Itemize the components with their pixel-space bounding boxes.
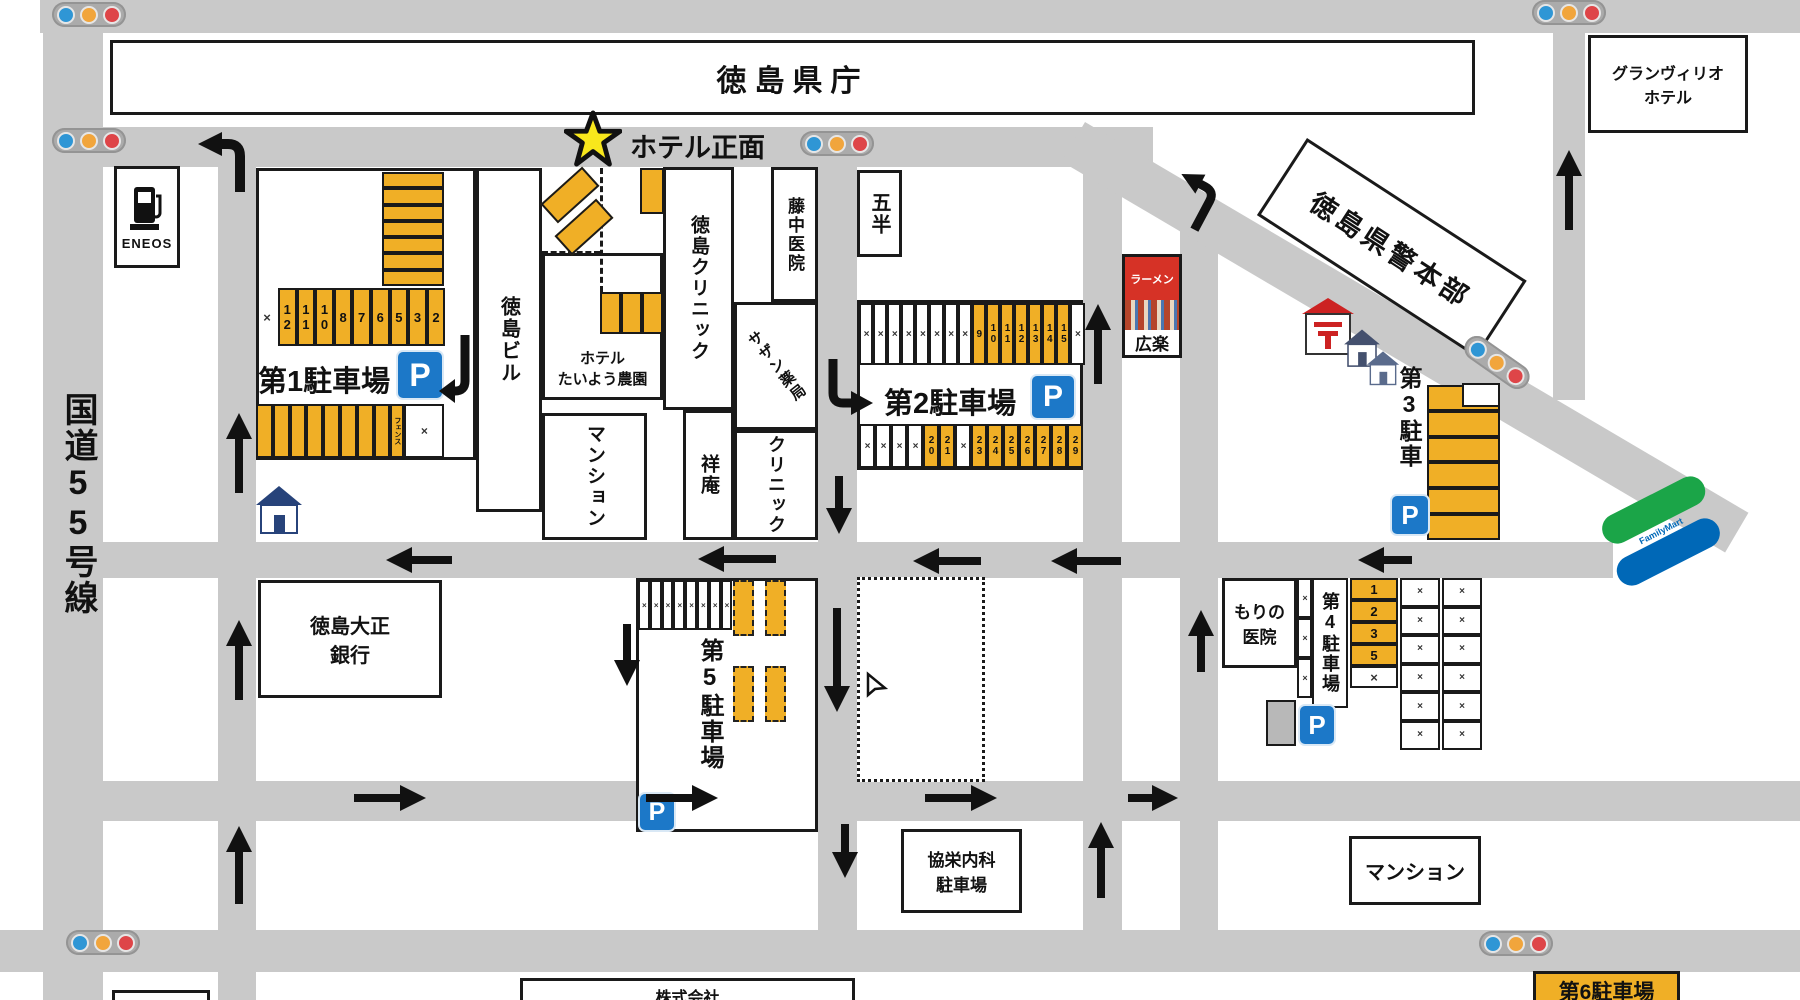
kyoei-label-line1: 協栄内科 xyxy=(928,846,996,871)
tokushima-clinic-label: 徳島クリニック xyxy=(685,215,712,362)
parking-spot: 10 xyxy=(986,303,1000,365)
parking-spot: 3 xyxy=(408,288,427,346)
parking-icon: P xyxy=(396,350,444,400)
parking-spot: 3 xyxy=(1350,622,1398,644)
southern-pharmacy-label: サザン薬局 xyxy=(742,326,811,406)
cursor-icon xyxy=(862,668,890,698)
parking-icon: P xyxy=(1030,374,1076,420)
bank-label-line1: 徳島大正 xyxy=(310,610,390,639)
building-kyoei-parking: 協栄内科 駐車場 xyxy=(901,829,1022,913)
parking-spot: 24 xyxy=(987,424,1003,468)
parking-spot xyxy=(621,292,642,334)
building-gohan: 五半 xyxy=(857,170,902,257)
traffic-light-icon xyxy=(800,131,874,156)
parking-spot xyxy=(1427,488,1500,514)
traffic-light-icon xyxy=(52,2,126,27)
parking-spot: × xyxy=(1442,721,1482,750)
building-mansion-center: マンション xyxy=(542,413,647,540)
signal-red-icon xyxy=(103,6,121,24)
left-arrow-icon xyxy=(913,546,981,576)
parking-spot xyxy=(1427,462,1500,488)
morino-label-line1: もりの xyxy=(1234,598,1285,623)
parking-spot xyxy=(1427,437,1500,463)
building-shoan: 祥庵 xyxy=(683,410,734,540)
parking-lot4-label-box: 第4駐車場 xyxy=(1312,578,1348,708)
parking-spot: 29 xyxy=(1067,424,1083,468)
parking-spot: × xyxy=(891,424,907,468)
parking-spot xyxy=(323,404,340,458)
parking-lot2-bottom-row: ××××2021×23242526272829 xyxy=(859,424,1083,468)
building-granvrio-hotel: グランヴィリオ ホテル xyxy=(1588,35,1748,133)
signal-blue-icon xyxy=(805,135,823,153)
hotel-taiyo-label-line1: ホテル xyxy=(580,347,625,368)
parking-spot: × xyxy=(1297,618,1312,658)
building-southern-pharmacy: サザン薬局 xyxy=(734,302,818,430)
signal-blue-icon xyxy=(57,6,75,24)
parking-lot5-label: 第5駐車場 xyxy=(692,638,727,771)
parking-spot: 2 xyxy=(1350,600,1398,622)
parking-spot: × xyxy=(1297,658,1312,698)
parking-spot: 26 xyxy=(1019,424,1035,468)
signal-blue-icon xyxy=(57,132,75,150)
parking-spot: 11 xyxy=(297,288,316,346)
parking-spot: × xyxy=(907,424,923,468)
fujinaka-clinic-label: 藤中医院 xyxy=(782,197,807,273)
parking-spot xyxy=(382,205,444,221)
parking-spot: × xyxy=(1400,635,1440,664)
parking-spot: × xyxy=(638,580,650,630)
parking-spot: フェンス xyxy=(390,404,404,458)
building-tokushima-clinic: 徳島クリニック xyxy=(663,167,734,410)
parking-map: 徳島県庁 グランヴィリオ ホテル 徳島県警本部 国道55号線 ENEOS ×12… xyxy=(0,0,1800,1000)
parking-spot: × xyxy=(1400,692,1440,721)
parking-spot: 14 xyxy=(1042,303,1056,365)
signal-yellow-icon xyxy=(80,6,98,24)
traffic-light-icon xyxy=(1532,0,1606,25)
granvrio-label-line2: ホテル xyxy=(1644,84,1692,108)
house-icon xyxy=(1362,350,1404,388)
right-arrow-icon xyxy=(1128,783,1178,813)
building-tokushima-bldg: 徳島ビル xyxy=(476,168,542,512)
parking-spot: × xyxy=(901,303,915,365)
parking-spot xyxy=(733,580,754,636)
parking-spot: × xyxy=(404,404,444,458)
traffic-light-icon xyxy=(1479,931,1553,956)
turn-arrow-icon xyxy=(823,355,879,415)
granvrio-label-line1: グランヴィリオ xyxy=(1612,60,1724,84)
parking-spot: × xyxy=(1442,607,1482,636)
parking-spot xyxy=(290,404,307,458)
house-icon xyxy=(254,484,304,538)
parking-spot: 8 xyxy=(334,288,353,346)
parking-spot: × xyxy=(1297,578,1312,618)
building-fujinaka-clinic: 藤中医院 xyxy=(771,167,818,302)
parking-spot: × xyxy=(1400,607,1440,636)
ramen-sign-label: ラーメン xyxy=(1125,257,1179,300)
parking-lot4-closed-column: ×××××× xyxy=(1400,578,1440,750)
building-eneos: ENEOS xyxy=(114,166,180,268)
right-arrow-icon xyxy=(646,783,718,813)
parking-spot: 12 xyxy=(278,288,297,346)
building-mansion-bottom: マンション xyxy=(1349,836,1481,905)
parking-lot4-thin-column: ××× xyxy=(1297,578,1312,698)
left-arrow-icon xyxy=(386,545,452,575)
parking-spot: × xyxy=(1350,666,1398,688)
parking-spot: 11 xyxy=(1000,303,1014,365)
parking-spot: × xyxy=(709,580,721,630)
parking-spot: 15 xyxy=(1056,303,1070,365)
parking-spot: 12 xyxy=(1014,303,1028,365)
parking-spot: × xyxy=(1442,578,1482,607)
signal-red-icon xyxy=(1530,935,1548,953)
up-arrow-icon xyxy=(1186,610,1216,672)
parking-spot: × xyxy=(958,303,972,365)
parking-spot: × xyxy=(650,580,662,630)
morino-label-line2: 医院 xyxy=(1243,623,1277,648)
building-bottom-left xyxy=(112,990,210,1000)
parking-spot xyxy=(1427,411,1500,437)
parking-boundary-dash xyxy=(600,168,603,292)
parking-spot: × xyxy=(875,424,891,468)
parking-spot: × xyxy=(685,580,697,630)
ramen-bowls-icon xyxy=(1125,300,1179,329)
signal-yellow-icon xyxy=(1484,350,1509,375)
signal-blue-icon xyxy=(1466,337,1491,362)
up-arrow-icon xyxy=(1086,822,1116,898)
down-arrow-icon xyxy=(612,624,642,686)
building-kabushiki: 株式会社 xyxy=(520,978,855,1000)
parking-spot: 5 xyxy=(1350,644,1398,666)
parking-lot3-cells xyxy=(1427,385,1500,540)
hotel-parking-cells xyxy=(600,292,663,334)
hotel-front-label: ホテル正面 xyxy=(630,126,765,165)
parking-spot xyxy=(640,168,664,214)
parking-spot: 20 xyxy=(923,424,939,468)
parking-spot xyxy=(273,404,290,458)
turn-arrow-icon xyxy=(194,128,252,194)
traffic-light-icon xyxy=(52,128,126,153)
signal-red-icon xyxy=(1583,4,1601,22)
turn-arrow-icon xyxy=(439,331,473,405)
road-fourth xyxy=(43,781,1800,821)
parking-spot xyxy=(642,292,663,334)
right-arrow-icon xyxy=(354,783,426,813)
clinic-label: クリニック xyxy=(763,435,789,535)
parking-spot: × xyxy=(1442,635,1482,664)
parking-spot: 1 xyxy=(1350,578,1398,600)
parking-lot1-stripes xyxy=(382,172,444,286)
left-arrow-icon xyxy=(1358,545,1412,575)
tokushima-bldg-label: 徳島ビル xyxy=(495,296,524,384)
parking-spot: × xyxy=(887,303,901,365)
left-arrow-icon xyxy=(698,544,776,574)
parking-icon: P xyxy=(1298,704,1336,746)
parking-spot: 28 xyxy=(1051,424,1067,468)
kyoei-label-line2: 駐車場 xyxy=(936,871,987,896)
parking-lot2-label: 第2駐車場 xyxy=(884,380,1016,422)
traffic-light-icon xyxy=(66,930,140,955)
parking-spot: × xyxy=(1400,664,1440,693)
building-bank: 徳島大正 銀行 xyxy=(258,580,442,698)
parking-spot: 7 xyxy=(352,288,371,346)
parking-spot: × xyxy=(697,580,709,630)
mansion-center-label: マンション xyxy=(581,424,608,529)
parking-lot4-number-column: 1235× xyxy=(1350,578,1398,688)
parking-lot5-closed-row: ×××××××× xyxy=(638,580,732,630)
parking-spot xyxy=(340,404,357,458)
parking-spot: × xyxy=(929,303,943,365)
parking-lot2-top-row: ××××××××9101112131415× xyxy=(859,303,1085,365)
koraku-label: 広楽 xyxy=(1125,330,1179,356)
signal-blue-icon xyxy=(1484,935,1502,953)
signal-red-icon xyxy=(851,135,869,153)
fuel-pump-icon xyxy=(129,184,165,236)
shoan-label: 祥庵 xyxy=(695,454,722,496)
parking-spot: × xyxy=(859,424,875,468)
up-arrow-icon xyxy=(1083,304,1113,384)
parking-spot xyxy=(306,404,323,458)
parking-lot1-bottom-row: フェンス× xyxy=(256,404,444,458)
parking-lot6: 第6駐車場 xyxy=(1533,971,1680,1000)
parking-icon: P xyxy=(1390,494,1430,536)
parking-spot xyxy=(733,666,754,722)
parking-spot: 25 xyxy=(1003,424,1019,468)
parking-spot xyxy=(600,292,621,334)
parking-spot: 6 xyxy=(371,288,390,346)
parking-spot xyxy=(256,404,273,458)
parking-spot: × xyxy=(1442,692,1482,721)
prefectural-office-label: 徳島県庁 xyxy=(717,56,869,100)
signal-red-icon xyxy=(1503,363,1528,388)
up-arrow-icon xyxy=(1554,150,1584,230)
building-morino-clinic: もりの 医院 xyxy=(1222,578,1297,668)
eneos-label: ENEOS xyxy=(122,236,173,251)
parking-spot xyxy=(382,172,444,188)
parking-spot xyxy=(357,404,374,458)
building-prefectural-office: 徳島県庁 xyxy=(110,40,1475,115)
parking-spot xyxy=(382,270,444,286)
down-arrow-icon xyxy=(822,608,852,712)
parking-spot xyxy=(765,666,786,722)
parking-spot xyxy=(765,580,786,636)
parking-spot: × xyxy=(915,303,929,365)
hotel-front-star-icon xyxy=(564,110,622,168)
parking-spot: × xyxy=(1400,578,1440,607)
parking-spot: × xyxy=(955,424,971,468)
parking-spot: × xyxy=(1442,664,1482,693)
signal-yellow-icon xyxy=(828,135,846,153)
gohan-label: 五半 xyxy=(865,192,894,236)
parking-spot: × xyxy=(1400,721,1440,750)
parking-spot xyxy=(382,253,444,269)
mansion-bottom-label: マンション xyxy=(1365,856,1465,885)
ramen-koraku-sign: ラーメン 広楽 xyxy=(1122,254,1182,358)
down-arrow-icon xyxy=(830,824,860,878)
parking-spot xyxy=(382,237,444,253)
signal-red-icon xyxy=(103,132,121,150)
left-arrow-icon xyxy=(1051,546,1121,576)
down-arrow-icon xyxy=(824,476,854,534)
right-arrow-icon xyxy=(925,783,997,813)
hotel-taiyo-label-line2: たいよう農園 xyxy=(558,368,648,389)
parking-lot4-closed-column: ×××××× xyxy=(1442,578,1482,750)
parking-lot1-label: 第1駐車場 xyxy=(258,358,390,400)
parking-lot5-open-cells xyxy=(733,580,786,722)
parking-spot: 9 xyxy=(972,303,986,365)
parking-spot: × xyxy=(256,288,278,346)
signal-red-icon xyxy=(117,934,135,952)
parking-spot: 10 xyxy=(315,288,334,346)
parking-spot: 5 xyxy=(390,288,409,346)
signal-yellow-icon xyxy=(1507,935,1525,953)
parking-spot xyxy=(382,221,444,237)
route55-label: 国道55号線 xyxy=(54,392,103,616)
signal-blue-icon xyxy=(1537,4,1555,22)
parking-lot1-top-row: ×121110876532 xyxy=(256,288,445,346)
up-arrow-icon xyxy=(224,826,254,904)
parking-spot xyxy=(382,188,444,204)
kabushiki-label: 株式会社 xyxy=(655,984,719,1000)
signal-yellow-icon xyxy=(1560,4,1578,22)
signal-yellow-icon xyxy=(80,132,98,150)
parking-spot: 27 xyxy=(1035,424,1051,468)
building-clinic: クリニック xyxy=(734,430,818,540)
parking-spot: × xyxy=(673,580,685,630)
road-vertical-d xyxy=(1180,230,1218,935)
parking-lot4-gray-cell xyxy=(1266,700,1296,746)
parking-spot: × xyxy=(721,580,733,630)
parking-spot: 23 xyxy=(971,424,987,468)
parking-spot: × xyxy=(662,580,674,630)
parking-lot3-notch xyxy=(1462,383,1500,407)
signal-yellow-icon xyxy=(94,934,112,952)
parking-lot4-label: 第4駐車場 xyxy=(1317,592,1343,694)
parking-spot: 21 xyxy=(939,424,955,468)
bank-label-line2: 銀行 xyxy=(330,639,370,668)
signal-blue-icon xyxy=(71,934,89,952)
parking-spot: × xyxy=(944,303,958,365)
up-arrow-icon xyxy=(224,620,254,700)
up-arrow-icon xyxy=(224,413,254,493)
parking-lot6-label: 第6駐車場 xyxy=(1559,976,1655,1000)
parking-spot xyxy=(374,404,391,458)
parking-spot: 13 xyxy=(1028,303,1042,365)
parking-spot xyxy=(1427,514,1500,540)
